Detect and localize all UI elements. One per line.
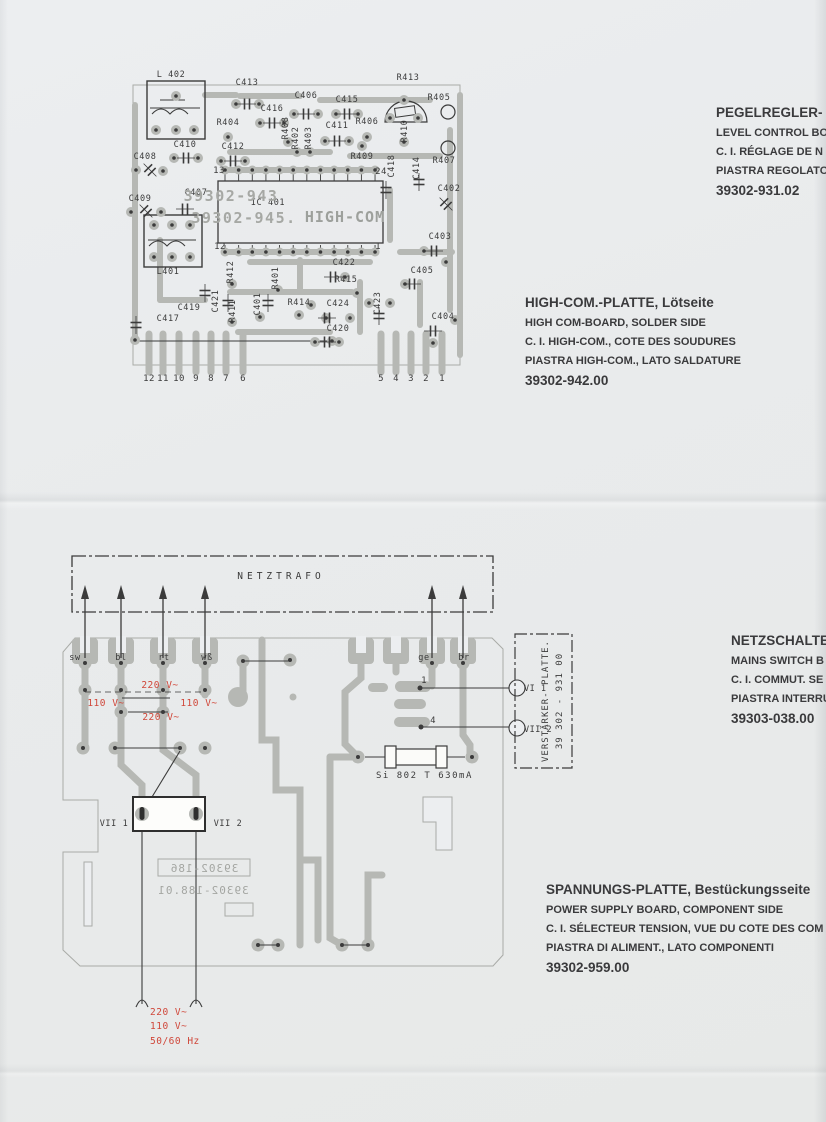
label-220-v-: 220 V~ (150, 1007, 187, 1018)
label-r407: R407 (433, 156, 456, 166)
solder-pad-hole (360, 168, 364, 172)
label-l401: L401 (157, 267, 180, 277)
board-cutout (423, 797, 452, 850)
label-r412: R412 (226, 261, 236, 284)
label-c408: C408 (134, 152, 157, 162)
solder-pad-hole (360, 144, 364, 148)
solder-pad-hole (237, 250, 241, 254)
label-r401: R401 (271, 267, 281, 290)
label-r402: R402 (291, 127, 301, 150)
solder-pad-hole (278, 168, 282, 172)
solder-pad-hole (319, 250, 323, 254)
copper-trace (345, 650, 361, 757)
label-c415: C415 (336, 95, 359, 105)
fuse-body (390, 749, 442, 765)
label-sw: sw (69, 653, 81, 663)
caption-line-fr: C. I. RÉGLAGE DE N (716, 143, 826, 162)
capacitor-symbol (263, 118, 281, 129)
solder-pad-hole (119, 710, 123, 714)
solder-pad-hole (431, 341, 435, 345)
solder-pad-hole (203, 746, 207, 750)
caption-line-it: PIASTRA INTERRU (731, 690, 826, 709)
label-r414: R414 (288, 298, 311, 308)
mirrored-print-39302-188: 39302-188.01 (157, 884, 248, 897)
copper-trace (163, 718, 196, 797)
solder-pad-hole (388, 301, 392, 305)
fuse-symbol (365, 746, 465, 768)
label-c409: C409 (129, 194, 152, 204)
solder-pad-hole (237, 168, 241, 172)
component-footprint-bar (368, 683, 388, 692)
solder-pad-hole (172, 156, 176, 160)
wire-arrow-head (81, 585, 89, 599)
label-c416: C416 (261, 104, 284, 114)
caption-power-supply-board: SPANNUNGS-PLATTE, Bestückungsseite POWER… (546, 881, 823, 977)
solder-pad-hole (348, 316, 352, 320)
solder-pad-hole (313, 340, 317, 344)
solder-pad-hole (332, 250, 336, 254)
label-10: 10 (173, 374, 185, 384)
solder-pad-hole (355, 291, 359, 295)
solder-pad-hole (264, 250, 268, 254)
netztrafo-label: NETZTRAFO (237, 571, 324, 582)
mains-connector-block (133, 797, 205, 831)
solder-pad-hole (192, 128, 196, 132)
capacitor-symbol (224, 156, 242, 167)
capacitor-symbol (263, 294, 274, 312)
label-c412: C412 (222, 142, 245, 152)
caption-part-number: 39303-038.00 (731, 710, 826, 728)
solder-pad-hole (367, 301, 371, 305)
solder-pad-hole (337, 340, 341, 344)
label-9: 9 (193, 374, 199, 384)
label-3: 3 (408, 374, 414, 384)
label-r404: R404 (217, 118, 240, 128)
label-11: 11 (157, 374, 169, 384)
callout-circle-vii2 (509, 720, 525, 736)
solder-pad-hole (250, 168, 254, 172)
label-110-v-: 110 V~ (150, 1021, 187, 1032)
capacitor-symbol (338, 109, 356, 120)
label-bl: bl (115, 653, 126, 663)
caption-line-en: HIGH COM-BOARD, SOLDER SIDE (525, 314, 741, 333)
capacitor-symbol (436, 194, 457, 215)
wire-arrow-head (117, 585, 125, 599)
callout-circle-vi1 (509, 680, 525, 696)
caption-highcom-board: HIGH-COM.-PLATTE, Lötseite HIGH COM-BOAR… (525, 294, 741, 390)
solder-pad-hole (129, 210, 133, 214)
label-c405: C405 (411, 266, 434, 276)
label-110-v-: 110 V~ (87, 698, 124, 709)
solder-pad-hole (297, 313, 301, 317)
solder-pad-hole (203, 688, 207, 692)
label-c418: C418 (387, 155, 397, 178)
label-c419: C419 (178, 303, 201, 313)
capacitor-symbol (297, 109, 315, 120)
label-c423: C423 (373, 292, 383, 315)
solder-pad-hole (264, 168, 268, 172)
solder-pad-hole (316, 112, 320, 116)
label-c410: C410 (174, 140, 197, 150)
solder-pad-hole (295, 150, 299, 154)
solder-pad-hole (83, 661, 87, 665)
label-2: 2 (423, 374, 429, 384)
capacitor-symbol (177, 153, 195, 164)
label-220-v-: 220 V~ (142, 712, 179, 723)
solder-pad-hole (243, 159, 247, 163)
solder-pad-hole (346, 250, 350, 254)
wire-arrow-head (459, 585, 467, 599)
ic-pin-1: 1 (375, 242, 381, 252)
label-r403: R403 (304, 127, 314, 150)
amplifier-board-number: 39 302 - 931 00 (555, 653, 565, 749)
label-c422: C422 (333, 258, 356, 268)
caption-part-number: 39302-931.02 (716, 182, 826, 200)
solder-pad-hole (81, 746, 85, 750)
copper-pour-dot (228, 687, 248, 707)
label-c401: C401 (253, 293, 263, 316)
board-print-39302-945: 39302-945. (191, 209, 296, 227)
solder-pad-hole (219, 159, 223, 163)
label-c420: C420 (327, 324, 350, 334)
edge-connector-slot (356, 636, 366, 653)
solder-pad-hole (234, 102, 238, 106)
label-220-v-: 220 V~ (141, 680, 178, 691)
edge-connector-slot (391, 636, 401, 653)
label-7: 7 (223, 374, 229, 384)
label-r405: R405 (428, 93, 451, 103)
capacitor-symbol (328, 136, 346, 147)
board-print-box (225, 903, 253, 916)
label-r408: R408 (281, 117, 291, 140)
solder-pad-hole (388, 116, 392, 120)
label-4: 4 (393, 374, 399, 384)
copper-dot (290, 694, 297, 701)
fuse-label: Si 802 T 630mA (376, 771, 473, 781)
caption-level-control-board: PEGELREGLER- LEVEL CONTROL BO C. I. RÉGL… (716, 104, 826, 200)
label-wß: wß (201, 653, 212, 663)
solder-pad-hole (278, 250, 282, 254)
solder-pad-hole (347, 139, 351, 143)
solder-pad-hole (319, 168, 323, 172)
copper-trace (368, 875, 382, 945)
label-ge: ge (418, 653, 429, 663)
solder-pad-hole (152, 223, 156, 227)
label-c414: C414 (412, 157, 422, 180)
solder-pad-hole (305, 250, 309, 254)
label-c421: C421 (211, 290, 221, 313)
label-c417: C417 (157, 314, 180, 324)
label-br: br (458, 653, 469, 663)
copper-trace (330, 757, 342, 945)
solder-pad-hole (356, 755, 360, 759)
ic-pin-12: 12 (214, 242, 226, 252)
solder-pad-hole (470, 755, 474, 759)
copper-traces (72, 636, 479, 952)
label-l-402: L 402 (157, 70, 186, 80)
label-c403: C403 (429, 232, 452, 242)
caption-line-it: PIASTRA DI ALIMENT., LATO COMPONENTI (546, 939, 823, 958)
caption-title-de: HIGH-COM.-PLATTE, Lötseite (525, 294, 741, 311)
caption-line-en: MAINS SWITCH B (731, 652, 826, 671)
wire-arrow-head (159, 585, 167, 599)
solder-pad-hole (365, 135, 369, 139)
label-r411: R411 (228, 300, 238, 323)
label-c413: C413 (236, 78, 259, 88)
label-50-60-hz: 50/60 Hz (150, 1036, 200, 1047)
solder-pad-hole (430, 661, 434, 665)
label-12: 12 (143, 374, 155, 384)
copper-trace (262, 690, 300, 945)
label-c411: C411 (326, 121, 349, 131)
solder-pad-hole (305, 168, 309, 172)
wire-arrow-head (201, 585, 209, 599)
solder-pad-hole (258, 121, 262, 125)
highcom-board-diagram: L 402C413C406C415R413R405R404C416C411R40… (126, 70, 460, 384)
power-board-diagram: NETZTRAFOswblrtwßgebrVII 1VII 214VI 1VII… (63, 556, 572, 1047)
solder-pad-hole (308, 150, 312, 154)
label-r410: R410 (400, 120, 410, 143)
l401-coil-symbol (148, 240, 196, 246)
solder-pad-hole (402, 98, 406, 102)
label-r415: R415 (335, 275, 358, 285)
label-5: 5 (378, 374, 384, 384)
r405-pad-ring (441, 105, 455, 119)
connector-slot (194, 807, 199, 820)
ic-pin-13: 13 (213, 166, 225, 176)
caption-part-number: 39302-959.00 (546, 959, 823, 977)
caption-line-en: POWER SUPPLY BOARD, COMPONENT SIDE (546, 901, 823, 920)
solder-pad-hole (152, 255, 156, 259)
solder-pad-hole (134, 168, 138, 172)
solder-pad-hole (188, 255, 192, 259)
solder-pad-hole (170, 223, 174, 227)
solder-pad-hole (154, 128, 158, 132)
label-1: 1 (439, 374, 445, 384)
solder-pad-hole (170, 255, 174, 259)
label-110-v-: 110 V~ (180, 698, 217, 709)
caption-title-de: NETZSCHALTE (731, 632, 826, 649)
solder-pad-hole (444, 260, 448, 264)
netztrafo-dashed-box (72, 556, 493, 612)
connector-slot (140, 807, 145, 820)
label-8: 8 (208, 374, 214, 384)
transformer-wire-arrows (81, 585, 467, 658)
solder-pad-hole (174, 128, 178, 132)
caption-line-en: LEVEL CONTROL BO (716, 124, 826, 143)
board-print-high-com: HIGH-COM (305, 208, 385, 226)
solder-pad-hole (323, 139, 327, 143)
ic-pin-24: 24 (375, 167, 387, 177)
label-c424: C424 (327, 299, 350, 309)
label-r409: R409 (351, 152, 374, 162)
solder-pad-hole (292, 112, 296, 116)
caption-part-number: 39302-942.00 (525, 372, 741, 390)
capacitor-symbol (140, 160, 161, 181)
scanned-service-manual-page: L 402C413C406C415R413R405R404C416C411R40… (0, 0, 826, 1122)
caption-line-fr: C. I. COMMUT. SE (731, 671, 826, 690)
solder-pad-hole (83, 688, 87, 692)
fuse-cap-right (436, 746, 447, 768)
mirrored-board-print: 39302-18639302-188.01 (157, 862, 248, 897)
solder-pad-hole (332, 168, 336, 172)
copper-trace (121, 718, 142, 797)
pin-4: 4 (430, 716, 436, 726)
solder-pad-hole (346, 168, 350, 172)
solder-pad-hole (334, 112, 338, 116)
component-footprint-bar (394, 717, 430, 727)
solder-pad-hole (161, 169, 165, 173)
label-6: 6 (240, 374, 246, 384)
solder-pad-hole (250, 250, 254, 254)
solder-pad-hole (133, 338, 137, 342)
solder-pad-hole (196, 156, 200, 160)
label-r406: R406 (356, 117, 379, 127)
solder-pad-hole (159, 210, 163, 214)
label-c406: C406 (295, 91, 318, 101)
caption-line-it: PIASTRA REGOLATO (716, 162, 826, 181)
r413-trimmer-slug (395, 106, 416, 118)
connector-vii2-label: VII 2 (214, 819, 243, 829)
solder-pad-hole (360, 250, 364, 254)
amplifier-board-label: VERSTÄRKER- PLATTE. (540, 640, 551, 762)
solder-pad-hole (226, 135, 230, 139)
label-c404: C404 (432, 312, 455, 322)
connector-vii1-label: VII 1 (100, 819, 129, 829)
l402-coil-symbol (150, 100, 200, 114)
solder-pad-hole (416, 116, 420, 120)
caption-line-fr: C. I. SÉLECTEUR TENSION, VUE DU COTE DES… (546, 920, 823, 939)
fuse-cap-left (385, 746, 396, 768)
caption-title-de: SPANNUNGS-PLATTE, Bestückungsseite (546, 881, 823, 898)
caption-line-fr: C. I. HIGH-COM., COTE DES SOUDURES (525, 333, 741, 352)
wire-arrow-head (428, 585, 436, 599)
caption-mains-switch-board: NETZSCHALTE MAINS SWITCH B C. I. COMMUT.… (731, 632, 826, 728)
board-slot (84, 862, 92, 926)
label-c402: C402 (438, 184, 461, 194)
capacitor-symbol (238, 99, 256, 110)
solder-pad-hole (356, 112, 360, 116)
component-footprint-bar (394, 699, 426, 709)
wiring-line (152, 751, 180, 797)
pin-1: 1 (421, 676, 427, 686)
solder-pad-hole (291, 250, 295, 254)
caption-line-it: PIASTRA HIGH-COM., LATO SALDATURE (525, 352, 741, 371)
caption-title-de: PEGELREGLER- (716, 104, 826, 121)
solder-pad-hole (119, 688, 123, 692)
solder-pad-hole (174, 94, 178, 98)
label-r413: R413 (397, 73, 420, 83)
solder-pad-hole (291, 168, 295, 172)
mirrored-print-39302-186: 39302-186 (170, 862, 239, 875)
label-rt: rt (158, 653, 169, 663)
board-print-39302-943: 39302-943 (184, 187, 279, 205)
solder-pad-hole (286, 140, 290, 144)
